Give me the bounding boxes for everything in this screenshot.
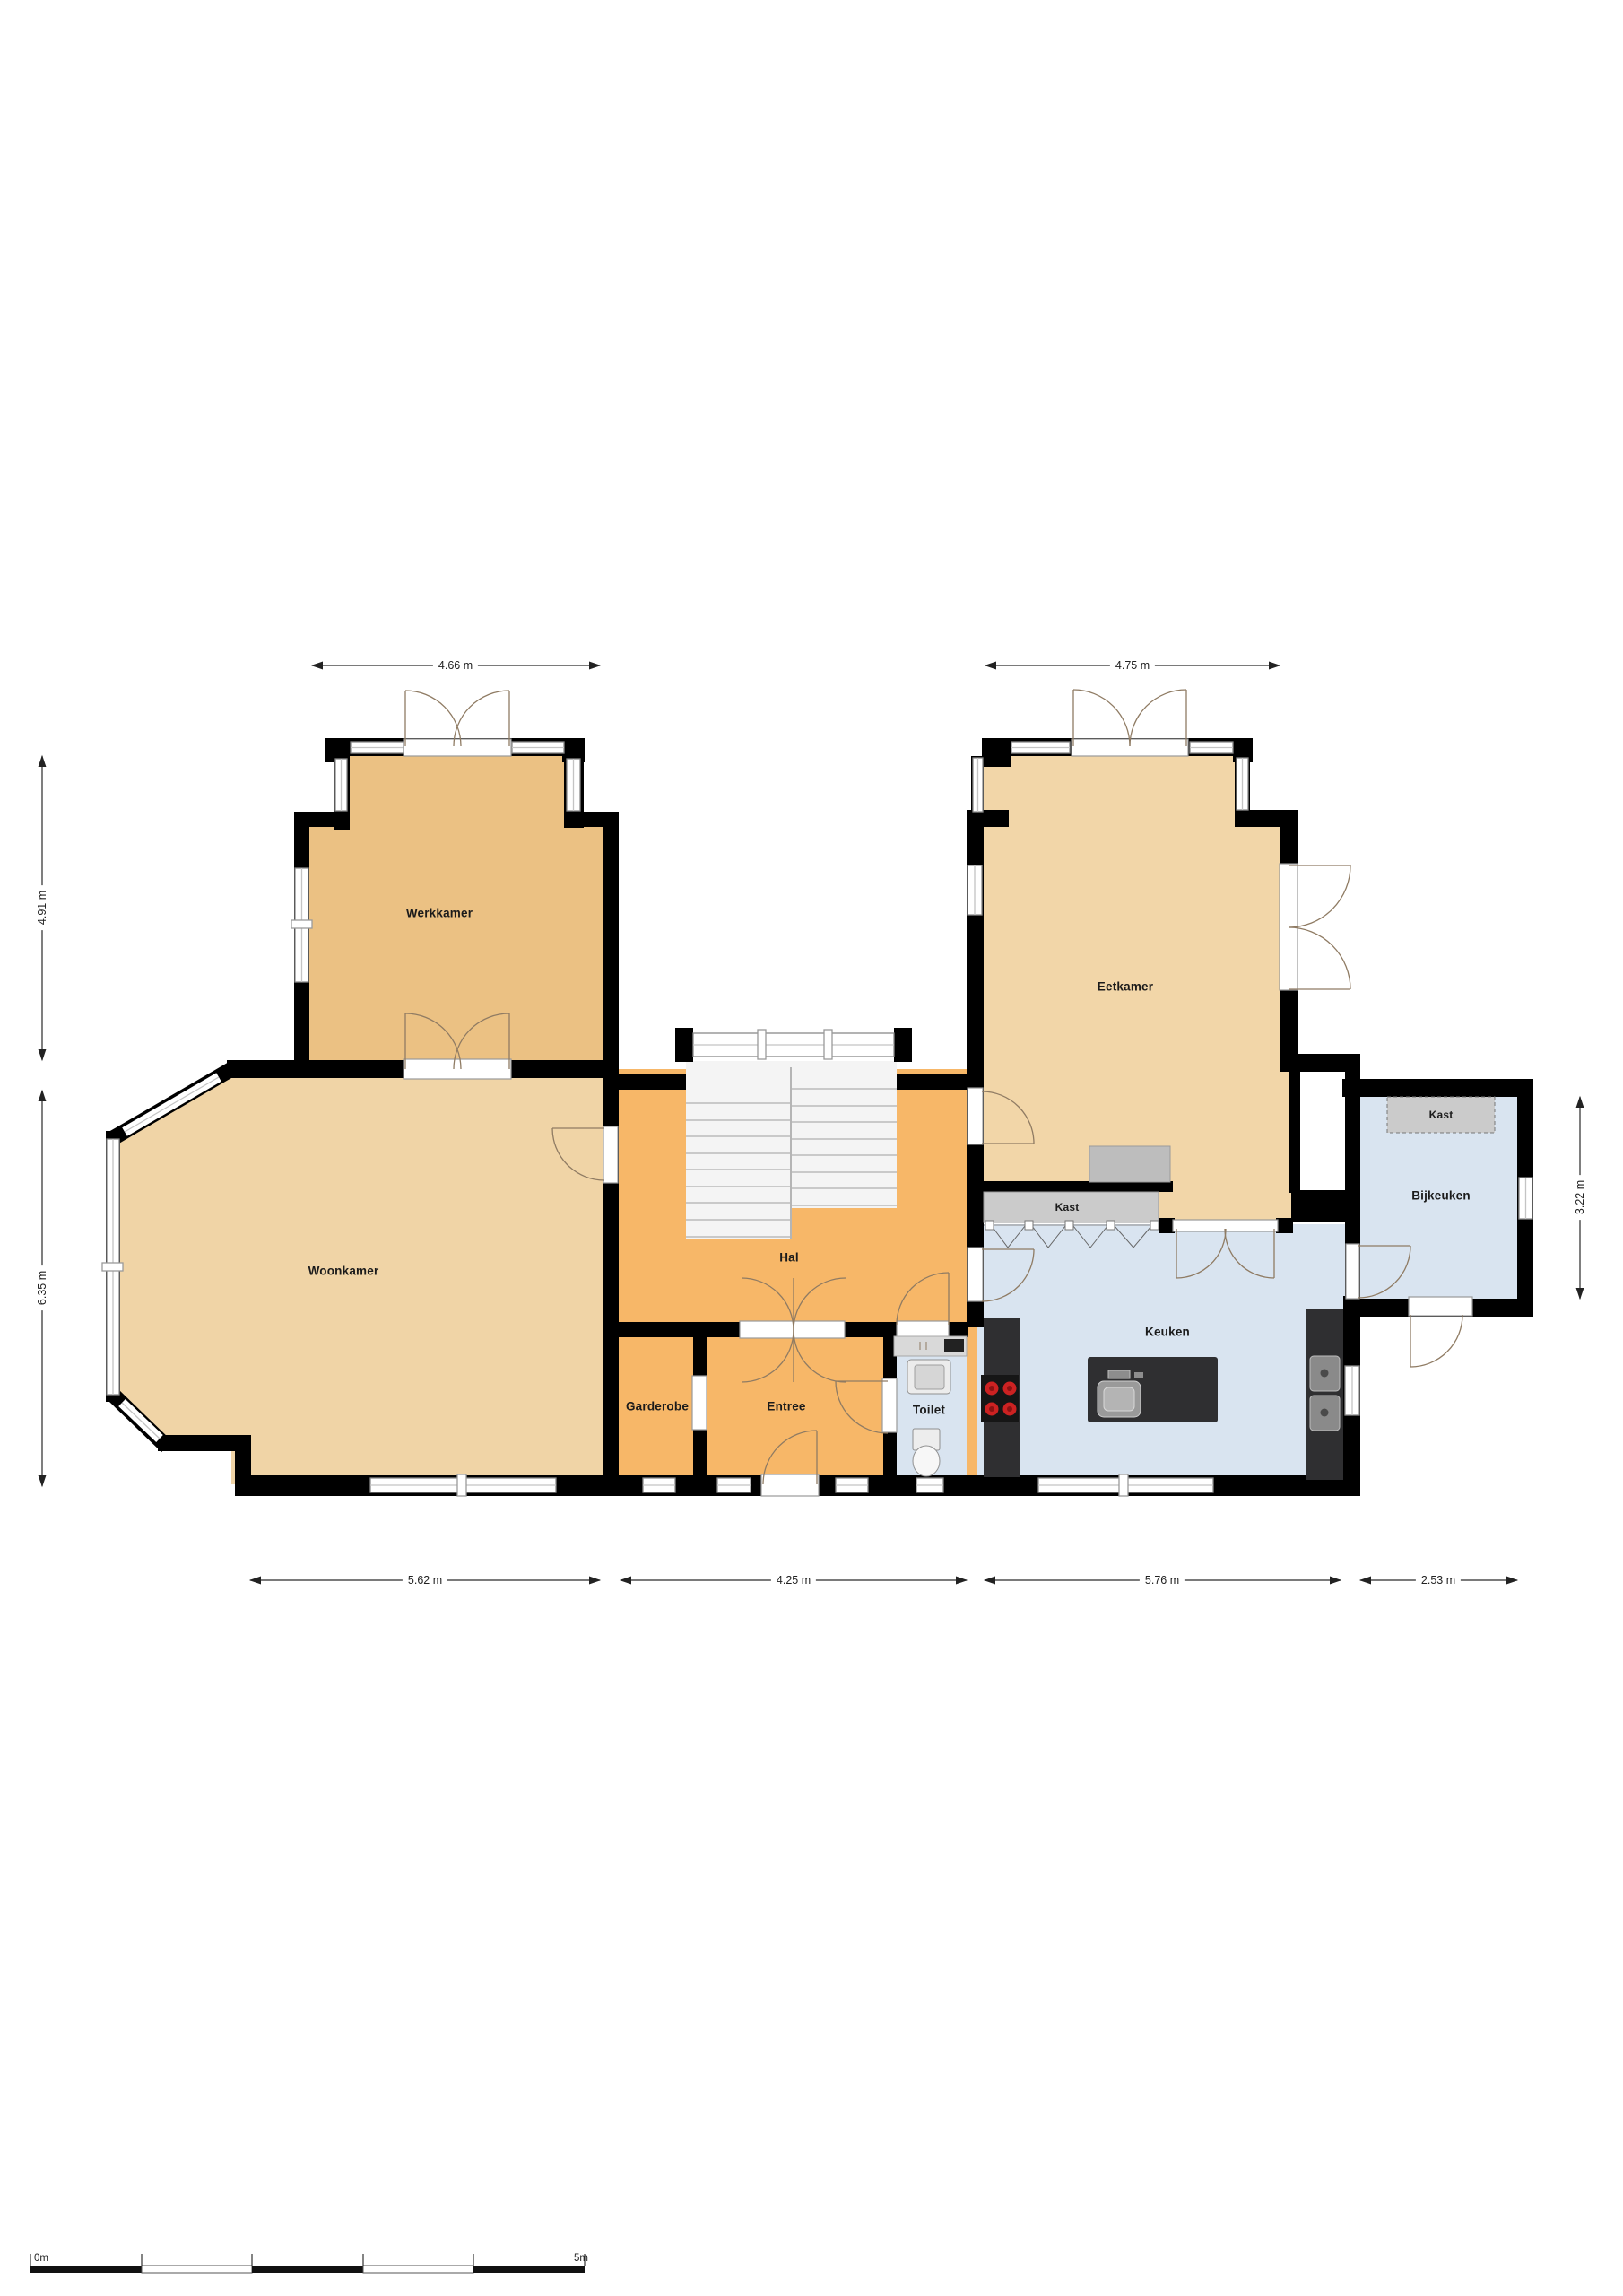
scale-bar [30, 2254, 585, 2273]
label-woonkamer: Woonkamer [308, 1265, 379, 1278]
werkkamer-floor-lower [309, 818, 608, 1074]
keuken-floor [977, 1224, 1347, 1484]
dim-bottom-keuken: 5.76 m [1140, 1574, 1185, 1587]
porch-window [693, 1030, 894, 1059]
label-kast-bijkeuken: Kast [1429, 1109, 1454, 1121]
floorplan-canvas: Werkkamer Eetkamer Woonkamer Hal Gardero… [0, 0, 1623, 2296]
eetkamer-floor-se [1159, 1181, 1294, 1222]
kitchen-counter-east [1306, 1309, 1343, 1480]
label-entree: Entree [767, 1400, 805, 1413]
label-werkkamer: Werkkamer [406, 907, 473, 920]
floorplan-drawing [0, 0, 1623, 2296]
bijkeuken-exterior-door [1410, 1315, 1462, 1367]
dim-left-lower: 6.35 m [36, 1265, 48, 1310]
label-kast-keuken: Kast [1055, 1201, 1080, 1213]
werkkamer-top-door [405, 691, 509, 746]
label-keuken: Keuken [1145, 1326, 1190, 1339]
label-garderobe: Garderobe [626, 1400, 689, 1413]
label-bijkeuken: Bijkeuken [1411, 1189, 1471, 1203]
eetkamer-floor [971, 812, 1294, 1192]
dim-bottom-entree: 4.25 m [771, 1574, 816, 1587]
dim-right-bijkeuken: 3.22 m [1574, 1175, 1586, 1220]
label-eetkamer: Eetkamer [1098, 980, 1153, 994]
eetkamer-top-door [1073, 690, 1186, 746]
scale-start-label: 0m [34, 2253, 48, 2264]
sideboard [1089, 1146, 1170, 1182]
werkkamer-floor [348, 747, 574, 830]
bijkeuken-window [1519, 1178, 1532, 1219]
dim-top-eetkamer: 4.75 m [1110, 659, 1155, 672]
label-hal: Hal [779, 1251, 799, 1265]
dim-bottom-woonkamer: 5.62 m [403, 1574, 447, 1587]
scale-end-label: 5m [574, 2253, 588, 2264]
dim-left-upper: 4.91 m [36, 885, 48, 930]
label-toilet: Toilet [913, 1404, 945, 1417]
dim-bottom-bijkeuken: 2.53 m [1416, 1574, 1461, 1587]
dim-top-werkkamer: 4.66 m [433, 659, 478, 672]
